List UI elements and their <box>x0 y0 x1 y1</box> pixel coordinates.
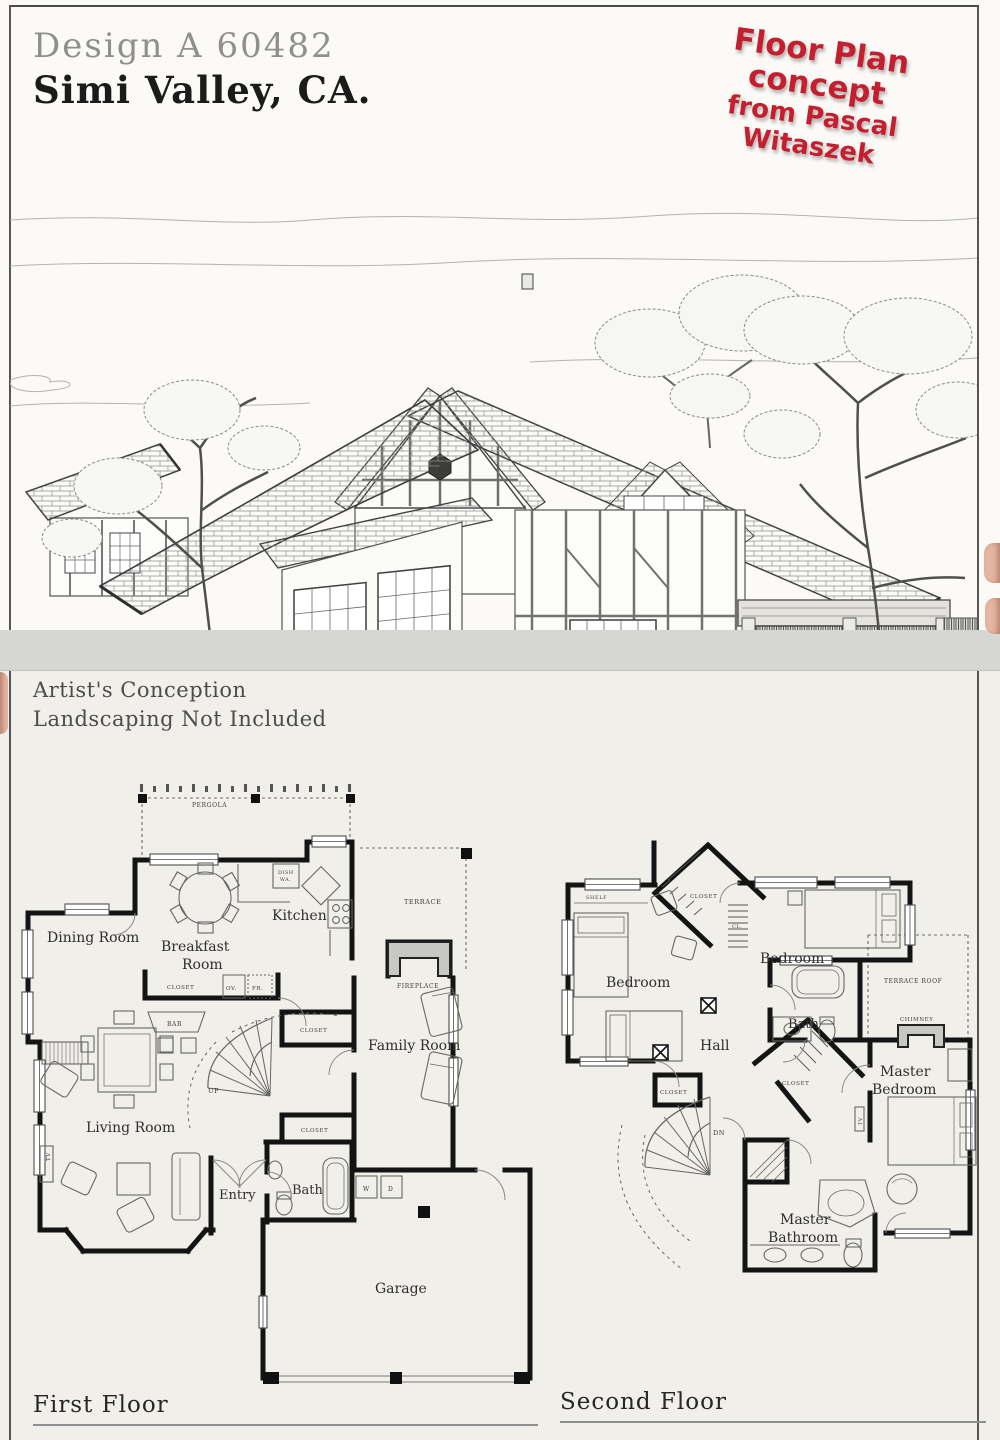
label-dish-2: WA. <box>280 877 291 883</box>
windows <box>22 836 458 1328</box>
label-up: UP <box>208 1087 219 1095</box>
divider-band <box>0 630 1000 671</box>
label-closet-top: CLOSET <box>690 894 717 900</box>
design-number: Design A 60482 <box>33 26 335 66</box>
label-breakfast-2: Room <box>182 957 223 973</box>
label-master-bedroom: Bedroom <box>872 1082 936 1098</box>
label-dryer: D <box>388 1186 393 1193</box>
finger-left <box>0 672 8 734</box>
second-floor-rule <box>560 1421 986 1423</box>
label-shelf: SHELF <box>586 895 607 901</box>
label-cl: CL. <box>732 924 743 930</box>
label-terrace-roof: TERRACE ROOF <box>884 978 942 985</box>
caption-line1: Artist's Conception <box>33 676 327 705</box>
house-illustration <box>10 148 977 632</box>
label-fireplace: FIREPLACE <box>397 983 439 990</box>
label-dining-room: Dining Room <box>47 930 139 946</box>
label-master-2: Master <box>780 1212 831 1228</box>
label-family-room: Family Room <box>368 1038 460 1054</box>
pergola-ticks <box>140 784 351 792</box>
label-washer: W <box>363 1186 370 1193</box>
right-wall <box>515 510 745 632</box>
label-oven: OV. <box>226 986 237 992</box>
page-border-top <box>9 5 978 7</box>
label-hall: Hall <box>700 1038 730 1054</box>
label-living-room: Living Room <box>86 1120 175 1136</box>
first-floor-labels: Dining Room Breakfast Room Kitchen Famil… <box>46 802 460 1297</box>
label-master: Master <box>880 1064 931 1080</box>
location-title: Simi Valley, CA. <box>33 68 372 112</box>
finger-right-1 <box>984 543 1000 583</box>
label-closet-1: CLOSET <box>300 1028 327 1034</box>
label-dish-1: DISH <box>278 870 294 876</box>
label-chimney: CHIMNEY <box>900 1017 933 1023</box>
label-bar: BAR <box>167 1021 182 1028</box>
label-closet-3: CLOSET <box>167 985 194 991</box>
label-pergola: PERGOLA <box>192 802 227 809</box>
label-bedroom-left: Bedroom <box>606 975 670 991</box>
label-closet-walkin: CLOSET <box>782 1081 809 1087</box>
label-breakfast-1: Breakfast <box>161 939 230 955</box>
caption-line2: Landscaping Not Included <box>33 705 327 734</box>
label-dn: DN <box>713 1129 725 1137</box>
first-floor-plan: Dining Room Breakfast Room Kitchen Famil… <box>20 780 540 1394</box>
label-closet-2: CLOSET <box>301 1128 328 1134</box>
label-garage: Garage <box>375 1281 427 1297</box>
second-floor-title: Second Floor <box>560 1389 727 1415</box>
illustration-caption: Artist's Conception Landscaping Not Incl… <box>33 676 327 734</box>
label-bedroom-right: Bedroom <box>760 951 824 967</box>
stairs-down <box>618 1097 710 1269</box>
label-bath: Bath <box>292 1183 324 1198</box>
label-fridge: FR. <box>252 986 264 992</box>
label-tv: TV <box>46 1152 52 1161</box>
finger-right-2 <box>985 598 1000 634</box>
label-tv: TV <box>858 1117 864 1125</box>
label-master-bathroom: Bathroom <box>768 1230 838 1246</box>
first-floor-title: First Floor <box>33 1392 169 1418</box>
label-terrace: TERRACE <box>404 898 441 906</box>
garage <box>738 600 950 632</box>
catalog-page: Design A 60482 Simi Valley, CA. Floor Pl… <box>0 0 1000 1440</box>
label-closet-left: CLOSET <box>660 1090 687 1096</box>
second-floor-plan: Bedroom Bedroom Bath Hall Master Bedroom… <box>550 835 990 1315</box>
label-kitchen: Kitchen <box>272 908 327 924</box>
label-bath: Bath <box>788 1017 820 1032</box>
fireplace <box>388 942 450 976</box>
chimney <box>898 1025 944 1047</box>
second-floor-labels: Bedroom Bedroom Bath Hall Master Bedroom… <box>586 894 942 1246</box>
first-floor-rule <box>33 1424 538 1426</box>
label-entry: Entry <box>219 1188 256 1203</box>
